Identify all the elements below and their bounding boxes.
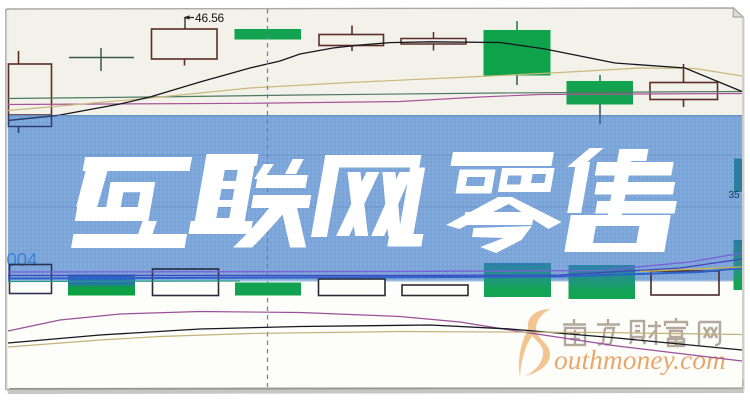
svg-text:004: 004 [7, 249, 38, 270]
svg-text:35: 35 [729, 190, 741, 201]
svg-text:46.56: 46.56 [195, 11, 225, 25]
